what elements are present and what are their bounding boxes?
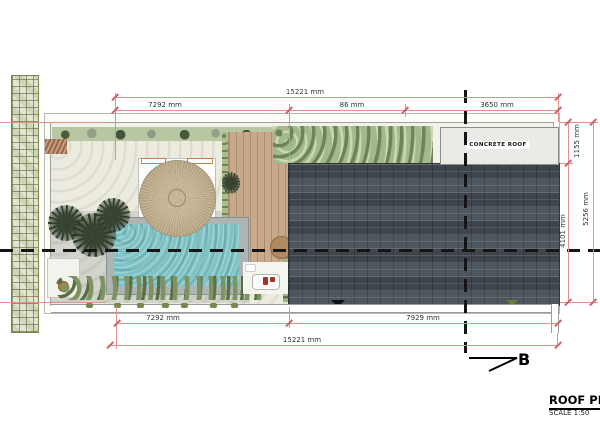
wood-slat-bench <box>45 139 67 154</box>
dim-tick <box>554 341 561 348</box>
dim-line-top-total <box>115 97 558 98</box>
section-line-horizontal <box>0 249 600 252</box>
dim-label-right-top: 1155 mm <box>573 124 581 158</box>
plant-pot <box>86 303 93 308</box>
dim-label-bottom-right: 7929 mm <box>406 314 440 322</box>
roof-plan-drawing: CONCRETE ROOF 15221 mm 7292 mm <box>0 0 600 426</box>
dim-label-top-left: 7292 mm <box>148 101 182 109</box>
car-detail <box>263 277 268 285</box>
tile-roof <box>288 163 560 306</box>
dim-extension <box>289 104 290 163</box>
dim-label-right-bottom: 4101 mm <box>559 214 567 248</box>
dim-extension <box>115 93 116 160</box>
palm-tree <box>96 198 130 232</box>
dim-line-right-inner <box>568 122 569 302</box>
dim-reference-left <box>0 302 106 303</box>
section-arrow-b-diagonal <box>489 357 518 372</box>
drawing-title: ROOF PLAN <box>549 393 600 410</box>
dim-line-bottom-total <box>110 345 558 346</box>
plant-pot <box>181 303 188 308</box>
car-detail <box>270 277 275 282</box>
drawing-scale: SCALE 1:50 <box>549 409 589 417</box>
section-label-b: B <box>518 350 530 369</box>
dim-reference-left <box>0 122 106 123</box>
dim-label-right-total: 5256 mm <box>582 192 590 226</box>
plant-pot <box>210 303 217 308</box>
garden-shrub-area <box>273 126 433 164</box>
dim-label-top-mid: 86 mm <box>340 101 365 109</box>
dim-line-right-outer <box>593 122 594 302</box>
boundary-wall-strip <box>11 75 39 333</box>
section-line-vertical <box>464 90 467 353</box>
dim-line-bottom-segments <box>117 323 558 324</box>
dim-label-top-right: 3650 mm <box>480 101 514 109</box>
lounger <box>245 264 256 272</box>
dim-line-top-segments <box>115 110 558 111</box>
dim-extension <box>289 307 290 328</box>
plant-pot <box>231 303 238 308</box>
eave-band-right-return <box>551 304 559 333</box>
dim-label-top-total: 15221 mm <box>286 88 324 96</box>
thatch-roof-center <box>168 189 186 207</box>
shrub-row-bottom <box>56 276 268 300</box>
eave-band-bottom <box>51 304 552 313</box>
concrete-roof-label: CONCRETE ROOF <box>466 141 529 149</box>
dim-extension <box>116 306 117 349</box>
plant-pot <box>137 303 144 308</box>
dim-label-bottom-total: 15221 mm <box>283 336 321 344</box>
section-arrow-b-line <box>469 357 517 359</box>
small-tree <box>222 172 240 194</box>
plant-pot <box>162 303 169 308</box>
dim-label-bottom-left: 7292 mm <box>146 314 180 322</box>
